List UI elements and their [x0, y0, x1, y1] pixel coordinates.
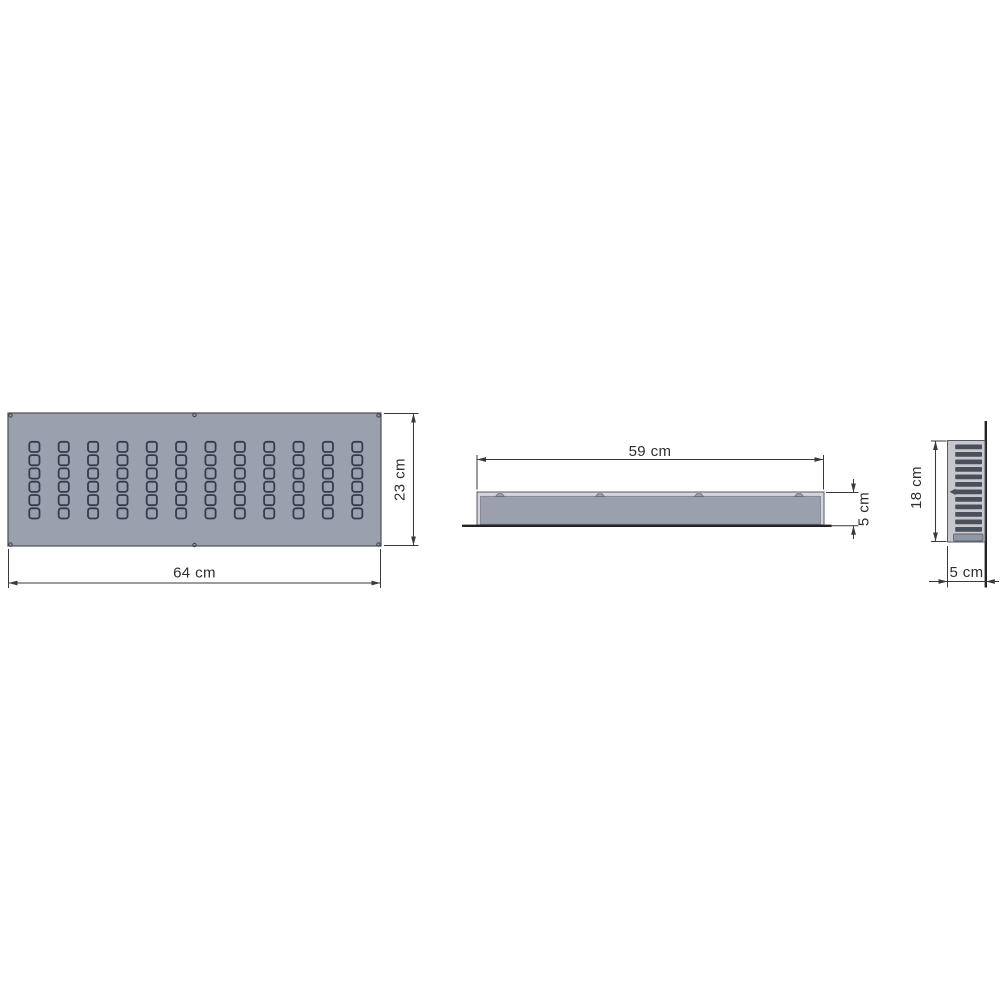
- arrowhead: [815, 457, 824, 462]
- top-depth-dimension: 5 cm: [826, 479, 873, 539]
- louver-slat: [955, 475, 982, 480]
- louver-slat: [955, 467, 982, 472]
- front-width-dimension: 64 cm: [9, 549, 381, 588]
- arrowhead: [372, 581, 381, 586]
- louver-slat: [955, 482, 982, 487]
- front-width-label: 64 cm: [173, 565, 216, 582]
- front-height-dimension: 23 cm: [384, 414, 419, 546]
- profile-body: [481, 496, 821, 524]
- technical-drawing-svg: 64 cm 23 cm 59 cm 5 cm: [0, 0, 1000, 1000]
- arrowhead: [477, 457, 486, 462]
- side-view: 18 cm 5 cm: [908, 421, 999, 588]
- front-view: 64 cm 23 cm: [8, 413, 419, 588]
- louver-slat: [955, 452, 982, 457]
- louver-slat: [955, 527, 982, 532]
- arrowhead: [939, 579, 948, 584]
- louver-slat: [955, 490, 982, 495]
- arrowhead: [986, 579, 995, 584]
- louver-slat: [955, 460, 982, 465]
- drawing-canvas: 64 cm 23 cm 59 cm 5 cm: [0, 0, 1000, 1000]
- louver-slat: [955, 512, 982, 517]
- side-height-label: 18 cm: [908, 466, 925, 509]
- top-view: 59 cm 5 cm: [462, 443, 873, 539]
- arrowhead: [851, 526, 856, 535]
- top-width-label: 59 cm: [629, 443, 672, 460]
- side-height-dimension: 18 cm: [908, 441, 947, 542]
- louver-slat: [955, 445, 982, 450]
- arrowhead: [9, 581, 18, 586]
- top-depth-label: 5 cm: [856, 492, 873, 526]
- arrowhead: [851, 484, 856, 493]
- front-height-label: 23 cm: [392, 458, 409, 501]
- louver-slat: [955, 497, 982, 502]
- louver-slat: [955, 505, 982, 510]
- arrowhead: [411, 414, 416, 423]
- side-depth-label: 5 cm: [949, 564, 983, 581]
- arrowhead: [933, 533, 938, 542]
- louver-bottom-bar: [954, 534, 984, 541]
- arrowhead: [411, 537, 416, 546]
- top-width-dimension: 59 cm: [477, 443, 824, 490]
- arrowhead: [933, 441, 938, 450]
- louver-slat: [955, 520, 982, 525]
